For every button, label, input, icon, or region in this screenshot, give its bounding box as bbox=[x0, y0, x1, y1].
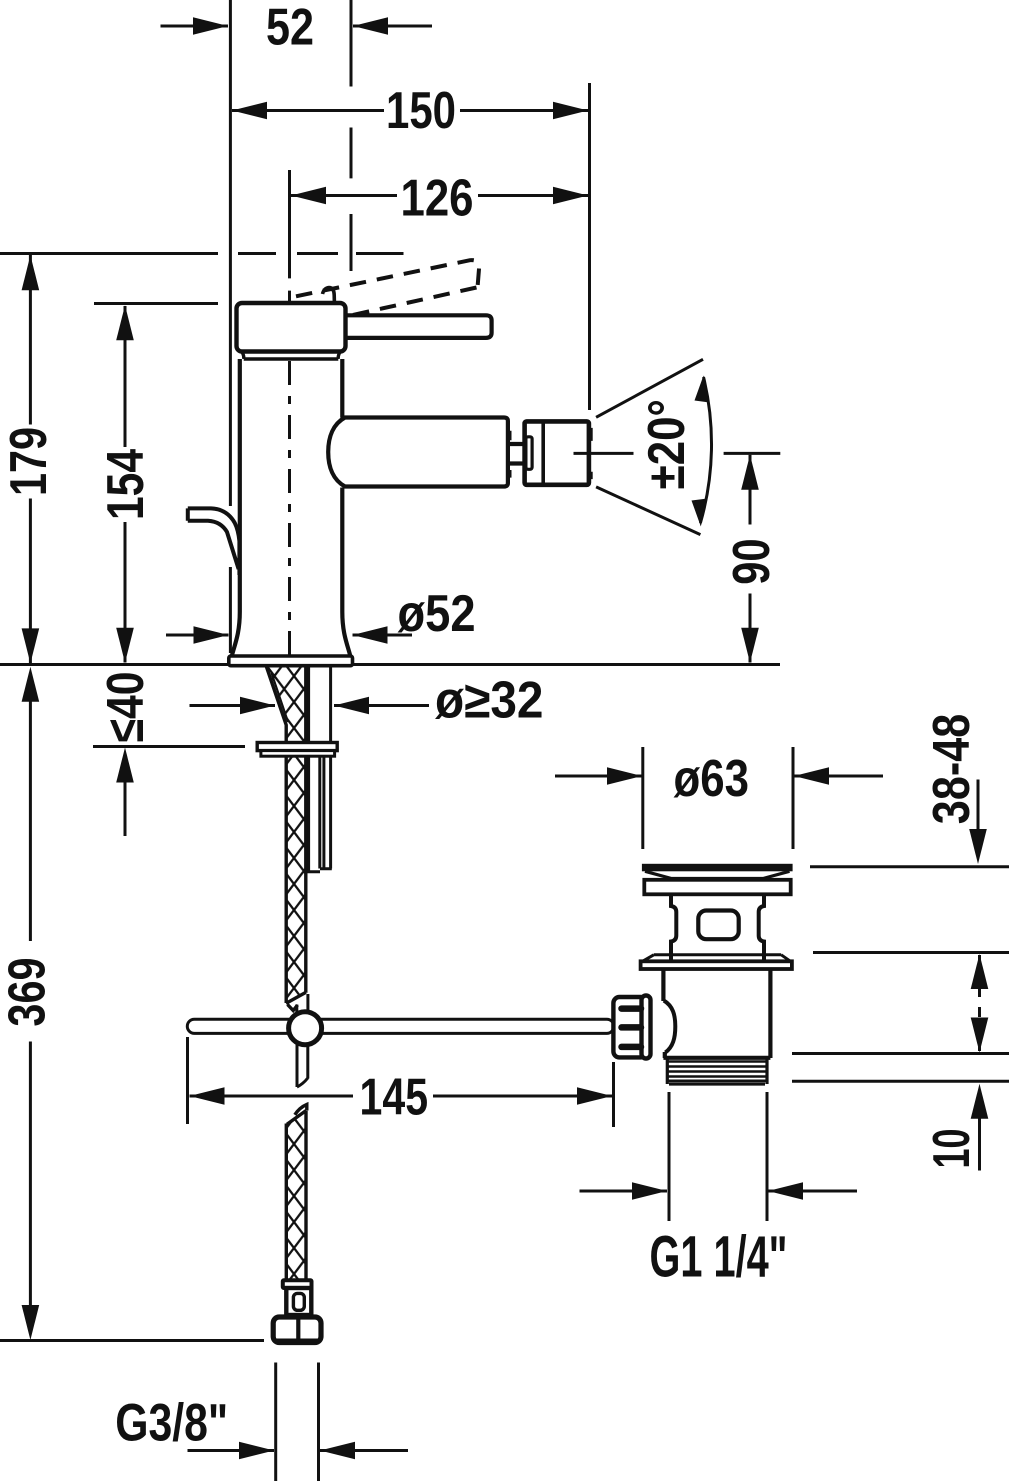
svg-text:179: 179 bbox=[0, 427, 58, 496]
svg-text:52: 52 bbox=[266, 0, 314, 57]
svg-text:145: 145 bbox=[360, 1069, 429, 1127]
svg-text:G3/8": G3/8" bbox=[115, 1394, 228, 1453]
svg-text:10: 10 bbox=[923, 1129, 981, 1169]
svg-text:150: 150 bbox=[386, 82, 456, 140]
svg-text:±20°: ±20° bbox=[638, 399, 696, 489]
svg-text:126: 126 bbox=[401, 170, 474, 228]
svg-text:38-48: 38-48 bbox=[923, 714, 981, 824]
svg-text:ø≥32: ø≥32 bbox=[435, 672, 544, 730]
svg-text:ø63: ø63 bbox=[674, 750, 750, 808]
svg-text:154: 154 bbox=[97, 449, 155, 520]
svg-text:90: 90 bbox=[723, 538, 781, 584]
svg-text:G1 1/4": G1 1/4" bbox=[650, 1224, 788, 1289]
svg-text:ø52: ø52 bbox=[398, 585, 476, 643]
svg-text:≤40: ≤40 bbox=[97, 672, 155, 743]
svg-text:369: 369 bbox=[0, 957, 57, 1026]
